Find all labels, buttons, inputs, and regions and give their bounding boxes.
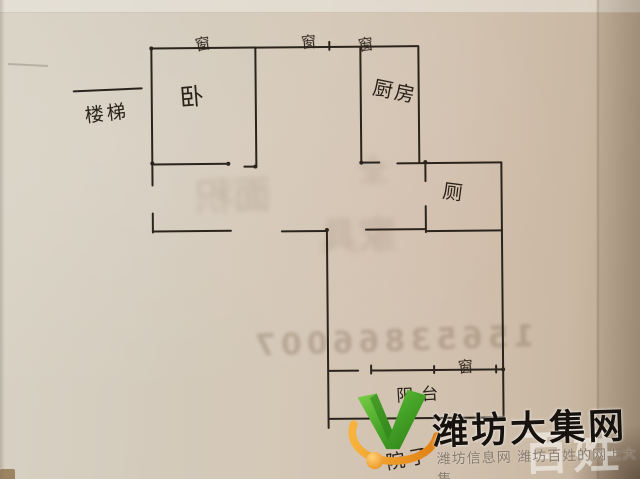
watermark: 百姓网 潍坊大集网 潍坊信息网 潍坊百姓的网上大集	[0, 0, 640, 479]
watermark-subtitle: 潍坊信息网 潍坊百姓的网上大集	[437, 443, 640, 479]
photo-of-floorplan: 15653866007 面积 家具 全	[0, 0, 640, 479]
weifang-daji-logo-icon	[344, 382, 440, 474]
